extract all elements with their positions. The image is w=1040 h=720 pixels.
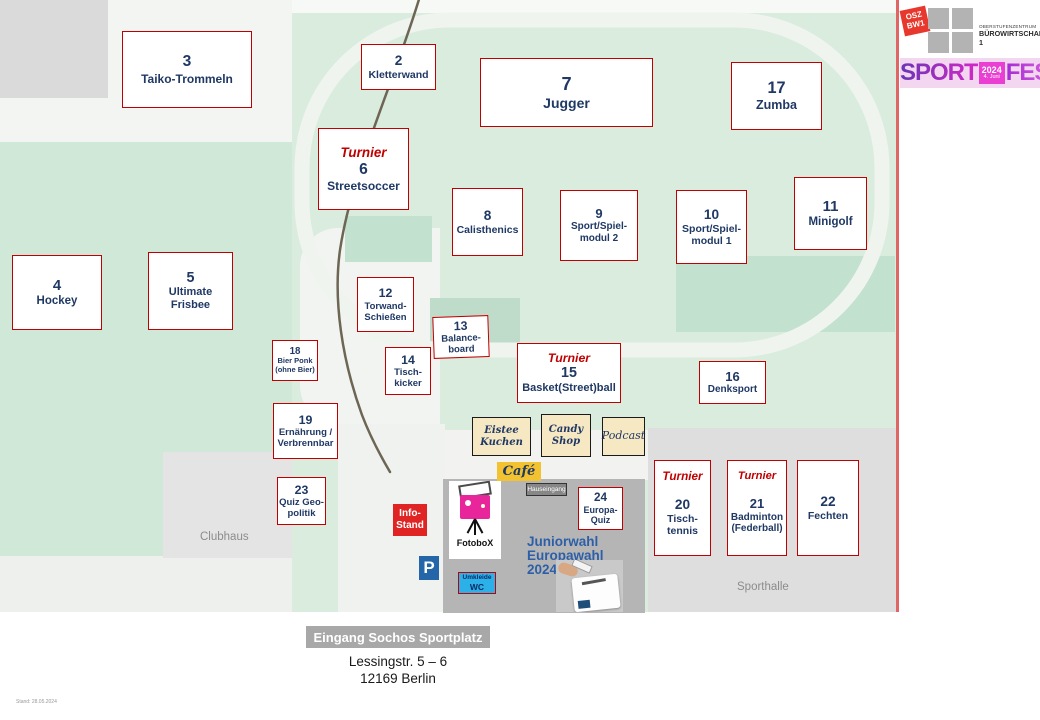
org-line-2: BÜROWIRTSCHAFT 1 bbox=[979, 29, 1040, 47]
logo-square-icon bbox=[952, 32, 973, 53]
fotobox-tripod-icon bbox=[460, 519, 490, 537]
station-20: Turnier 20 Tisch- tennis bbox=[654, 460, 711, 556]
osz-logo-text: BW1 bbox=[906, 19, 925, 31]
banner-date-badge: 2024 4. Juni bbox=[979, 62, 1005, 84]
pale-area-bottom-left bbox=[0, 556, 292, 612]
station-21: Turnier 21 Badminton (Federball) bbox=[727, 460, 787, 556]
address: Lessingstr. 5 – 6 12169 Berlin bbox=[296, 654, 500, 688]
station-17: 17 Zumba bbox=[731, 62, 822, 130]
station-number: 20 bbox=[675, 497, 690, 513]
station-label: Tisch- bbox=[667, 513, 698, 525]
fotobox-body-icon bbox=[460, 495, 490, 519]
address-street: Lessingstr. 5 – 6 bbox=[296, 654, 500, 671]
station-number: 12 bbox=[379, 286, 393, 301]
ballot-label-icon bbox=[578, 600, 591, 609]
entrance-badge: Eingang Sochos Sportplatz bbox=[306, 626, 490, 648]
stand-label: Candy bbox=[549, 424, 584, 436]
station-label: Quiz bbox=[591, 515, 611, 526]
station-label: tennis bbox=[667, 525, 698, 537]
station-label: Minigolf bbox=[808, 216, 852, 230]
station-label: Ernährung / bbox=[279, 427, 332, 438]
station-label: Verbrennbar bbox=[278, 438, 334, 449]
station-number: 2 bbox=[395, 53, 403, 69]
banner-fest-text: FEST bbox=[1006, 59, 1040, 87]
station-number: 5 bbox=[187, 270, 195, 287]
station-label: (Federball) bbox=[731, 523, 782, 535]
station-number: 4 bbox=[53, 277, 61, 295]
station-14: 14 Tisch- kicker bbox=[385, 347, 431, 395]
logo-square-icon bbox=[952, 8, 973, 29]
station-label: Jugger bbox=[543, 95, 590, 112]
station-label: Tisch- bbox=[394, 367, 422, 378]
stand-podcast: Podcast bbox=[602, 417, 645, 456]
station-label: Sport/Spiel- bbox=[682, 223, 741, 235]
station-13: 13 Balance- board bbox=[432, 315, 489, 359]
station-23: 23 Quiz Geo- politik bbox=[277, 477, 326, 525]
logo-square-icon bbox=[928, 32, 949, 53]
station-label: Zumba bbox=[756, 98, 797, 113]
stand-eistee-kuchen: Eistee Kuchen bbox=[472, 417, 531, 456]
fotobox-label: FotoboX bbox=[457, 538, 494, 548]
station-label: Frisbee bbox=[171, 299, 210, 312]
station-label: board bbox=[448, 344, 475, 356]
banner-sport-text: SPORT bbox=[900, 59, 978, 87]
station-label: kicker bbox=[394, 378, 421, 389]
fotobox-card: FotoboX bbox=[449, 481, 501, 559]
turnier-label: Turnier bbox=[738, 470, 776, 483]
station-4: 4 Hockey bbox=[12, 255, 102, 330]
banner-day: 4. Juni bbox=[984, 75, 1000, 81]
turnier-label: Turnier bbox=[662, 470, 702, 484]
station-label: Badminton bbox=[731, 512, 783, 524]
map-area: Clubhaus Sporthalle 3 Taiko-Trommeln 2 K… bbox=[0, 0, 899, 612]
station-number: 22 bbox=[820, 494, 835, 510]
white-path-column bbox=[338, 424, 445, 612]
turnier-label: Turnier bbox=[548, 351, 590, 366]
turnier-label: Turnier bbox=[340, 145, 386, 161]
station-label: Streetsoccer bbox=[327, 179, 400, 193]
station-number: 16 bbox=[725, 369, 739, 384]
info-stand-badge: Info- Stand bbox=[393, 504, 427, 536]
ballot-box-icon bbox=[571, 574, 620, 612]
juniorwahl-line: Juniorwahl bbox=[527, 535, 637, 549]
white-strip-top bbox=[292, 0, 899, 13]
stand-label: Podcast bbox=[602, 430, 645, 443]
osz-logo-red-square: OSZ BW1 bbox=[900, 6, 931, 37]
map-date-footnote: Stand: 28.05.2024 bbox=[16, 699, 57, 705]
station-number: 9 bbox=[595, 206, 602, 221]
station-label: Ultimate bbox=[169, 286, 212, 299]
station-label: Torwand- bbox=[364, 301, 406, 312]
sportfest-site-map: Clubhaus Sporthalle 3 Taiko-Trommeln 2 K… bbox=[0, 0, 1040, 720]
station-label: modul 2 bbox=[580, 233, 618, 245]
stand-label: Shop bbox=[552, 436, 580, 448]
station-number: 7 bbox=[561, 74, 571, 95]
stand-candy-shop: Candy Shop bbox=[541, 414, 591, 457]
stand-label: Kuchen bbox=[480, 437, 523, 449]
station-number: 11 bbox=[823, 198, 839, 216]
station-number: 19 bbox=[299, 413, 313, 428]
station-number: 10 bbox=[704, 207, 719, 223]
station-label: Taiko-Trommeln bbox=[141, 72, 233, 86]
station-22: 22 Fechten bbox=[797, 460, 859, 556]
station-24: 24 Europa- Quiz bbox=[578, 487, 623, 530]
station-label: Fechten bbox=[808, 510, 848, 522]
station-label: politik bbox=[288, 508, 316, 519]
station-number: 14 bbox=[401, 353, 415, 368]
cafe-label: Café bbox=[497, 462, 541, 481]
station-12: 12 Torwand- Schießen bbox=[357, 277, 414, 332]
wc-label: WC bbox=[470, 582, 484, 593]
logo-square-icon bbox=[928, 8, 949, 29]
station-label: (ohne Bier) bbox=[275, 366, 315, 375]
umkleide-label: Umkleide bbox=[463, 574, 492, 582]
station-8: 8 Calisthenics bbox=[452, 188, 523, 256]
station-3: 3 Taiko-Trommeln bbox=[122, 31, 252, 108]
map-right-boundary-line bbox=[896, 0, 899, 612]
field-patch-right bbox=[676, 256, 895, 332]
station-label: Europa- bbox=[583, 505, 617, 516]
station-label: Denksport bbox=[708, 384, 757, 396]
station-number: 15 bbox=[561, 365, 577, 382]
station-6: Turnier 6 Streetsoccer bbox=[318, 128, 409, 210]
station-label: Quiz Geo- bbox=[279, 497, 324, 508]
fotobox-lens-icon bbox=[465, 500, 471, 506]
station-19: 19 Ernährung / Verbrennbar bbox=[273, 403, 338, 459]
fotobox-flash-icon bbox=[481, 504, 485, 508]
station-number: 17 bbox=[767, 79, 785, 98]
org-name: OBERSTUFENZENTRUM BÜROWIRTSCHAFT 1 bbox=[979, 24, 1040, 47]
ballot-slot-icon bbox=[582, 578, 606, 585]
info-stand-label: Info- bbox=[399, 508, 421, 520]
station-label: Hockey bbox=[37, 295, 78, 309]
station-5: 5 Ultimate Frisbee bbox=[148, 252, 233, 330]
sporthalle-label: Sporthalle bbox=[737, 581, 789, 593]
station-label: Balance- bbox=[441, 332, 481, 345]
stand-label: Eistee bbox=[484, 425, 518, 437]
station-10: 10 Sport/Spiel- modul 1 bbox=[676, 190, 747, 264]
station-number: 13 bbox=[453, 318, 467, 333]
umkleide-wc-badge: Umkleide WC bbox=[458, 572, 496, 594]
station-2: 2 Kletterwand bbox=[361, 44, 436, 90]
station-number: 8 bbox=[484, 208, 492, 224]
hauseingang-badge: Hauseingang bbox=[526, 483, 567, 496]
station-label: modul 1 bbox=[691, 235, 731, 247]
station-number: 23 bbox=[295, 483, 309, 498]
station-number: 24 bbox=[594, 491, 607, 505]
station-7: 7 Jugger bbox=[480, 58, 653, 127]
station-label: Sport/Spiel- bbox=[571, 221, 627, 233]
sportfest-banner: SPORT 2024 4. Juni FEST bbox=[900, 58, 1040, 88]
station-9: 9 Sport/Spiel- modul 2 bbox=[560, 190, 638, 261]
station-11: 11 Minigolf bbox=[794, 177, 867, 250]
parking-icon: P bbox=[419, 556, 439, 580]
building-top-left bbox=[0, 0, 108, 98]
clubhaus-label: Clubhaus bbox=[200, 531, 249, 543]
station-label: Basket(Street)ball bbox=[522, 382, 616, 395]
station-label: Calisthenics bbox=[457, 224, 519, 236]
info-stand-label: Stand bbox=[396, 520, 424, 532]
station-number: 21 bbox=[750, 496, 764, 511]
field-patch-center bbox=[345, 216, 432, 262]
station-label: Schießen bbox=[364, 312, 406, 323]
station-number: 3 bbox=[183, 53, 192, 71]
station-label: Kletterwand bbox=[368, 69, 428, 81]
station-number: 6 bbox=[359, 161, 368, 179]
address-city: 12169 Berlin bbox=[296, 671, 500, 688]
ballot-box-image bbox=[556, 560, 623, 612]
station-16: 16 Denksport bbox=[699, 361, 766, 404]
station-18: 18 Bier Ponk (ohne Bier) bbox=[272, 340, 318, 381]
station-15: Turnier 15 Basket(Street)ball bbox=[517, 343, 621, 403]
